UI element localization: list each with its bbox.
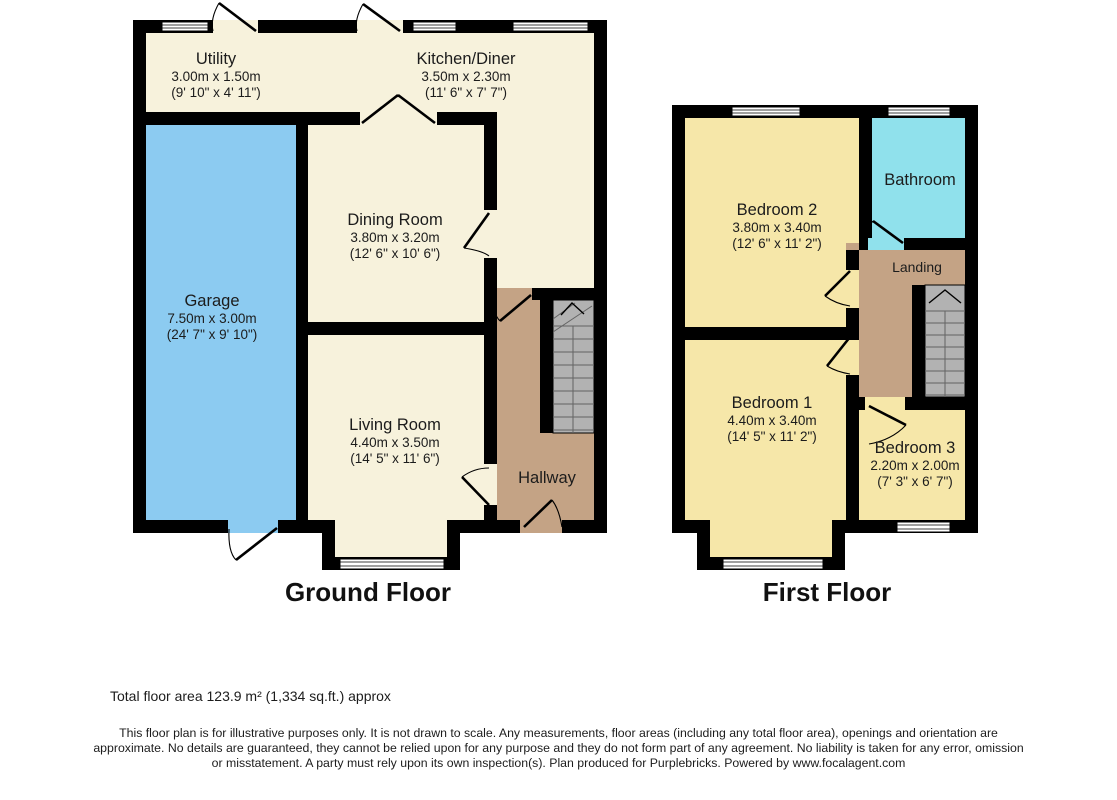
- first-staircase: [925, 285, 965, 397]
- utility-dim-metric: 3.00m x 1.50m: [171, 69, 260, 84]
- bedroom1-bay-floor: [710, 520, 832, 558]
- bedroom2-label: Bedroom 2: [737, 201, 818, 219]
- utility-label: Utility: [196, 50, 237, 68]
- bedroom3-dim-imperial: (7' 3" x 6' 7"): [877, 474, 953, 489]
- kitchen-diner-dim-metric: 3.50m x 2.30m: [421, 69, 510, 84]
- bedroom1-dim-metric: 4.40m x 3.40m: [727, 413, 816, 428]
- window: [888, 107, 950, 116]
- landing-label: Landing: [892, 259, 942, 275]
- living-bay-floor: [335, 520, 447, 558]
- window: [413, 22, 456, 31]
- living-room-dim-metric: 4.40m x 3.50m: [350, 435, 439, 450]
- floor-plan-canvas: Utility 3.00m x 1.50m (9' 10" x 4' 11") …: [0, 0, 1117, 655]
- first-floor-plan: Bedroom 2 3.80m x 3.40m (12' 6" x 11' 2"…: [672, 105, 978, 607]
- bedroom2-dim-imperial: (12' 6" x 11' 2"): [732, 236, 822, 251]
- bathroom-label: Bathroom: [884, 171, 956, 189]
- ground-staircase: [553, 300, 594, 433]
- window: [513, 22, 588, 31]
- utility-dim-imperial: (9' 10" x 4' 11"): [171, 85, 261, 100]
- garage-dim-imperial: (24' 7" x 9' 10"): [167, 327, 258, 342]
- living-room-label: Living Room: [349, 416, 441, 434]
- bedroom3-label: Bedroom 3: [875, 439, 956, 457]
- ground-floor-plan: Utility 3.00m x 1.50m (9' 10" x 4' 11") …: [133, 3, 607, 607]
- disclaimer-line: This floor plan is for illustrative purp…: [0, 726, 1117, 741]
- window: [162, 22, 208, 31]
- window: [897, 522, 950, 532]
- bedroom1-label: Bedroom 1: [732, 394, 813, 412]
- bay-window: [340, 559, 444, 569]
- kitchen-diner-dim-imperial: (11' 6" x 7' 7"): [425, 85, 507, 100]
- disclaimer: This floor plan is for illustrative purp…: [0, 726, 1117, 772]
- disclaimer-line: or misstatement. A party must rely upon …: [0, 756, 1117, 771]
- kitchen-diner-label: Kitchen/Diner: [416, 50, 516, 68]
- garage-label: Garage: [184, 292, 239, 310]
- bay-window: [723, 559, 823, 569]
- hallway-label: Hallway: [518, 469, 577, 487]
- dining-room-dim-metric: 3.80m x 3.20m: [350, 230, 439, 245]
- bedroom3-dim-metric: 2.20m x 2.00m: [870, 458, 959, 473]
- window: [732, 107, 800, 116]
- first-floor-title: First Floor: [763, 577, 892, 607]
- living-room-dim-imperial: (14' 5" x 11' 6"): [350, 451, 440, 466]
- disclaimer-line: approximate. No details are guaranteed, …: [0, 741, 1117, 756]
- dining-room-label: Dining Room: [347, 211, 442, 229]
- bedroom2-dim-metric: 3.80m x 3.40m: [732, 220, 821, 235]
- total-floor-area: Total floor area 123.9 m² (1,334 sq.ft.)…: [110, 688, 391, 704]
- bedroom1-dim-imperial: (14' 5" x 11' 2"): [727, 429, 817, 444]
- ground-floor-title: Ground Floor: [285, 577, 451, 607]
- garage-dim-metric: 7.50m x 3.00m: [167, 311, 256, 326]
- floor-plan-page: Utility 3.00m x 1.50m (9' 10" x 4' 11") …: [0, 0, 1117, 800]
- dining-room-dim-imperial: (12' 6" x 10' 6"): [350, 246, 441, 261]
